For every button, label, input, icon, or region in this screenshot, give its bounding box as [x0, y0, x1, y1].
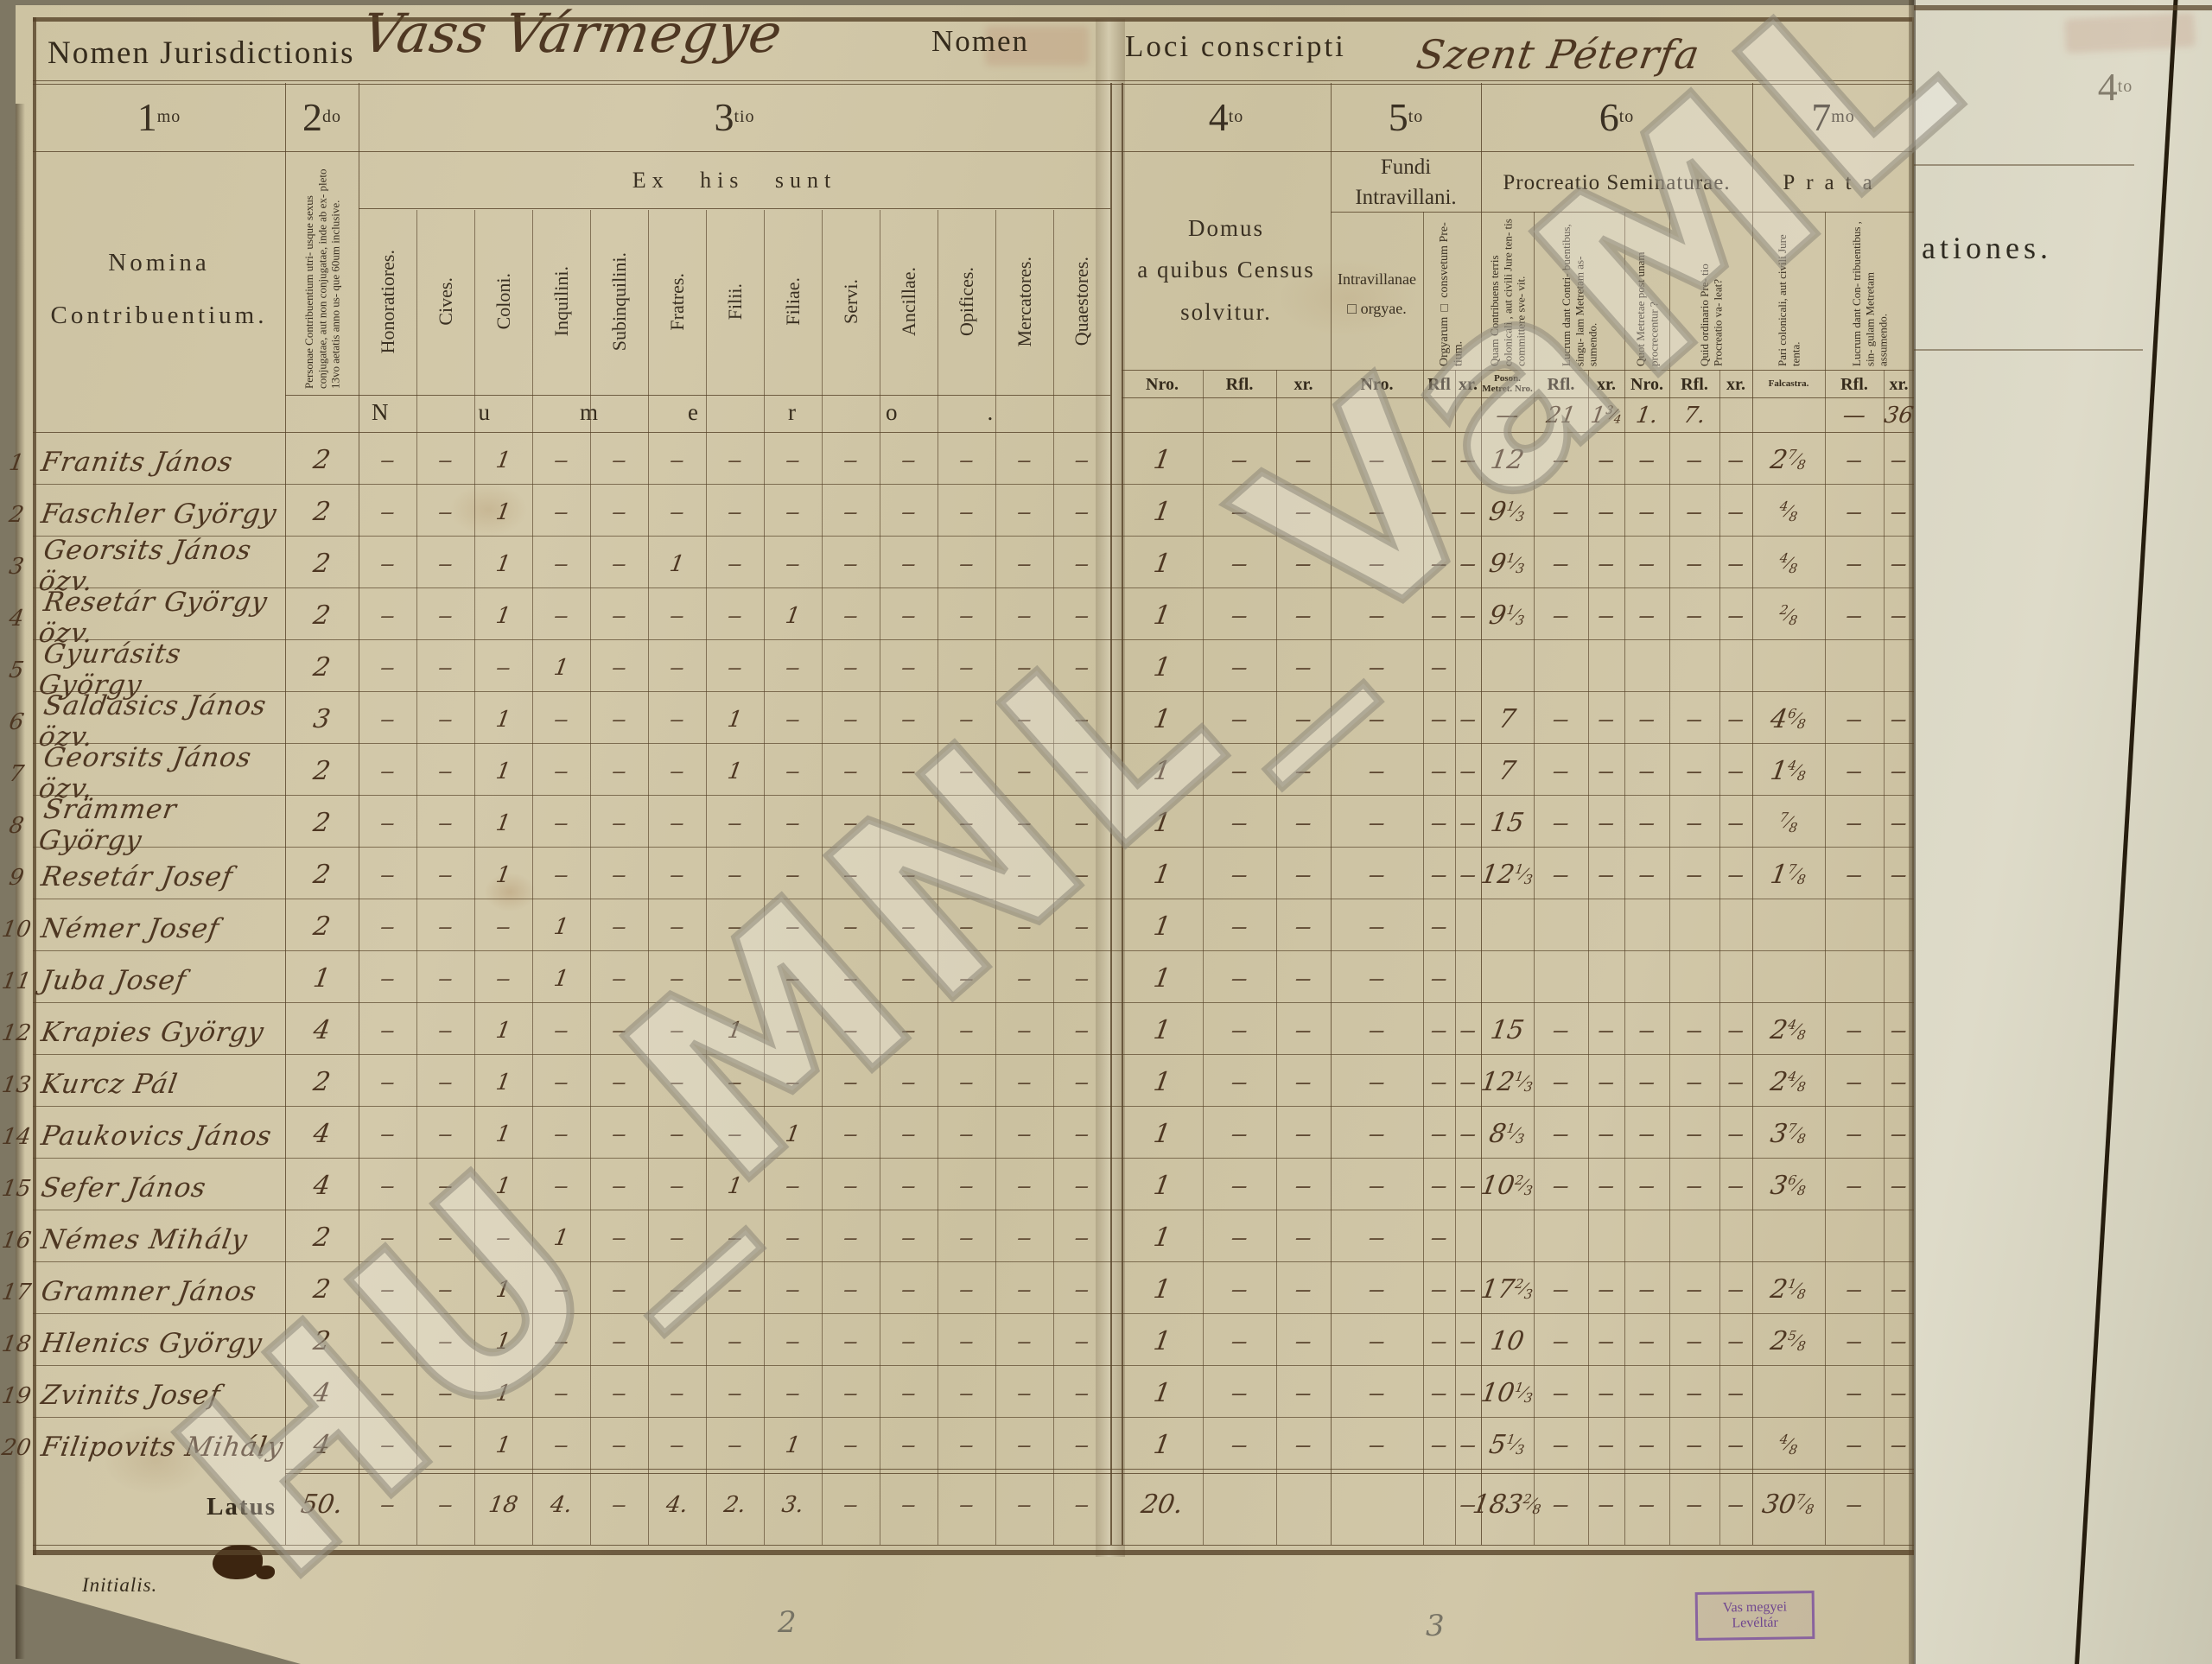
table-cell: ‒ [355, 1166, 419, 1206]
table-cell [1621, 1216, 1673, 1258]
table-cell: ‒ [1199, 1268, 1280, 1310]
table-cell: ‒ [529, 441, 593, 480]
table-cell: 1 [529, 648, 593, 688]
table-cell: ‒ [702, 855, 766, 895]
column-2-description: Personae Contribuentium utri- usque sexu… [286, 154, 358, 392]
table-cell: ‒ [355, 648, 419, 688]
table-cell: 1 [471, 700, 535, 740]
table-cell: ‒ [587, 1270, 651, 1310]
p2-cell: 4 [282, 1113, 362, 1154]
table-cell: ‒ [1530, 1372, 1592, 1413]
table-cell: ‒ [760, 700, 824, 740]
h-rule [33, 743, 1914, 744]
table-cell: ‒ [1666, 491, 1723, 532]
table-cell: ‒ [876, 752, 940, 791]
table-cell: ‒ [413, 544, 477, 584]
table-cell: ‒ [413, 1374, 477, 1413]
table-cell: ‒ [1821, 750, 1887, 791]
table-cell: ‒ [1666, 1113, 1723, 1154]
table-cell: ‒ [1050, 1270, 1113, 1310]
table-cell: ‒ [934, 1270, 998, 1310]
h-rule [33, 847, 1914, 848]
table-cell: 1 [702, 700, 766, 740]
table-cell: ‒ [1327, 646, 1427, 688]
row-number: 1 [0, 446, 34, 480]
subheader-label: xr. [1588, 372, 1624, 397]
table-cell: ‒ [1050, 803, 1113, 843]
p2-cell: 4 [282, 1372, 362, 1413]
p2-cell: 2 [282, 646, 362, 688]
latus-cell: ‒ [818, 1484, 883, 1526]
table-cell: ‒ [529, 544, 593, 584]
table-cell: ‒ [1327, 594, 1427, 636]
column-6-number: 6to [1481, 86, 1752, 147]
table-cell: ‒ [1666, 854, 1723, 895]
p2-cell: 2 [282, 543, 362, 584]
table-cell: 7⁄8 [1749, 802, 1828, 843]
table-cell: ‒ [818, 1374, 882, 1413]
table-cell: ‒ [1530, 698, 1592, 740]
numero-label: Numero. [372, 399, 1110, 426]
table-cell: ‒ [702, 1115, 766, 1154]
table-cell: 1 [1118, 854, 1206, 895]
table-cell: ‒ [702, 1218, 766, 1258]
h-rule [359, 208, 1110, 209]
subheader-label: Rfl [1423, 372, 1455, 397]
ink-blot [256, 1566, 275, 1579]
table-cell: ‒ [1050, 492, 1113, 532]
table-cell: 1 [471, 752, 535, 791]
subheader-label: xr. [1719, 372, 1752, 397]
table-cell: ‒ [1530, 1268, 1592, 1310]
table-cell: ‒ [645, 1115, 709, 1154]
table-cell: ‒ [1327, 1424, 1427, 1465]
table-cell: 1 [760, 1426, 824, 1465]
table-cell: ‒ [1666, 1424, 1723, 1465]
table-cell: ‒ [1530, 750, 1592, 791]
table-cell: ‒ [529, 1011, 593, 1051]
table-cell: ‒ [529, 1166, 593, 1206]
latus-cell: 4. [645, 1484, 709, 1526]
table-cell: ‒ [645, 1011, 709, 1051]
table-cell: ‒ [992, 1426, 1056, 1465]
latus-cell: ‒ [1530, 1483, 1592, 1526]
table-cell: ‒ [760, 1374, 824, 1413]
table-cell: ‒ [645, 752, 709, 791]
h-rule [33, 1054, 1914, 1055]
table-cell: 1 4⁄8 [1749, 750, 1828, 791]
table-cell: ‒ [587, 1426, 651, 1465]
table-cell: ‒ [934, 1218, 998, 1258]
table-cell: ‒ [413, 1218, 477, 1258]
table-cell: ‒ [645, 959, 709, 999]
table-cell: 4⁄8 [1749, 1424, 1828, 1465]
table-cell [1621, 646, 1673, 688]
table-cell: ‒ [1530, 854, 1592, 895]
table-cell [1666, 957, 1723, 999]
table-cell [1478, 905, 1537, 947]
nomen-label: Nomen [931, 24, 1029, 59]
price-row-cell: 21 [1531, 399, 1591, 432]
table-cell: ‒ [1821, 1372, 1887, 1413]
row-number: 8 [0, 809, 34, 843]
table-cell: 1 [471, 1063, 535, 1102]
table-cell: 1 [529, 907, 593, 947]
col3-sublabel: Ancillae. [880, 210, 938, 393]
table-cell [1821, 1216, 1887, 1258]
col3-sublabel: Filiae. [764, 210, 822, 393]
orgyarum-pretium-label: Orgyarum □ consvetum Pre- tium. [1423, 216, 1481, 370]
table-cell: ‒ [1621, 1320, 1673, 1362]
table-cell: 1 [529, 959, 593, 999]
table-cell: ‒ [1199, 594, 1280, 636]
table-cell: 1 [1118, 905, 1206, 947]
table-cell: ‒ [1821, 1320, 1887, 1362]
table-cell: ‒ [760, 648, 824, 688]
table-cell: ‒ [1821, 698, 1887, 740]
table-cell: ‒ [1666, 1009, 1723, 1051]
latus-cell: ‒ [934, 1484, 999, 1526]
table-cell: ‒ [876, 700, 940, 740]
subheader-label: xr. [1455, 372, 1481, 397]
table-cell: 10 [1478, 1320, 1537, 1362]
table-cell: 1 [1118, 1113, 1206, 1154]
table-cell: ‒ [1327, 1320, 1427, 1362]
column-1-title: Nomina Contribuentium. [33, 216, 285, 363]
table-cell: ‒ [818, 907, 882, 947]
table-cell: ‒ [1327, 957, 1427, 999]
table-cell: 1 [471, 1270, 535, 1310]
table-cell: ‒ [1821, 543, 1887, 584]
table-cell: 1 7⁄8 [1749, 854, 1828, 895]
table-cell: ‒ [645, 803, 709, 843]
table-cell: ‒ [818, 544, 882, 584]
table-cell: ‒ [818, 1218, 882, 1258]
table-cell: ‒ [1530, 1061, 1592, 1102]
table-cell: ‒ [413, 1270, 477, 1310]
table-cell: ‒ [1327, 1009, 1427, 1051]
h-rule [33, 17, 1912, 22]
row-number: 6 [0, 705, 34, 740]
table-cell: 9 1⁄3 [1478, 491, 1537, 532]
table-cell: ‒ [934, 700, 998, 740]
p2-cell: 2 [282, 1061, 362, 1102]
latus-cell: ‒ [1621, 1483, 1673, 1526]
table-cell: ‒ [818, 1270, 882, 1310]
p2-cell: 2 [282, 905, 362, 947]
fundi-orgyae-label: Intravillanae □ orgyae. [1331, 218, 1423, 370]
table-cell: ‒ [702, 648, 766, 688]
table-cell: ‒ [876, 441, 940, 480]
row-number: 4 [0, 601, 34, 636]
table-cell: ‒ [529, 596, 593, 636]
table-cell: ‒ [934, 907, 998, 947]
table-cell: ‒ [1327, 905, 1427, 947]
table-cell: ‒ [1327, 1165, 1427, 1206]
table-cell: ‒ [413, 1426, 477, 1465]
table-cell: ‒ [1530, 594, 1592, 636]
table-cell: ‒ [1273, 802, 1334, 843]
table-cell: ‒ [1050, 907, 1113, 947]
table-cell: ‒ [934, 648, 998, 688]
table-cell: ‒ [413, 959, 477, 999]
table-cell: ‒ [1530, 1165, 1592, 1206]
table-cell: ‒ [587, 441, 651, 480]
subheader-label: Poson. Metret. Nro. [1481, 372, 1534, 397]
table-cell: ‒ [934, 1374, 998, 1413]
table-cell: 1 [471, 1115, 535, 1154]
table-cell [1749, 1216, 1828, 1258]
table-cell: ‒ [1621, 1061, 1673, 1102]
table-cell: ‒ [355, 959, 419, 999]
table-cell: ‒ [645, 1374, 709, 1413]
table-cell: ‒ [992, 1063, 1056, 1102]
table-cell: ‒ [934, 1166, 998, 1206]
latus-cell: 18 [471, 1484, 536, 1526]
table-cell: ‒ [645, 441, 709, 480]
table-cell: ‒ [876, 1063, 940, 1102]
table-cell: ‒ [934, 959, 998, 999]
table-cell: ‒ [413, 596, 477, 636]
table-cell: ‒ [1666, 802, 1723, 843]
table-cell: ‒ [992, 959, 1056, 999]
table-cell: ‒ [1199, 1113, 1280, 1154]
table-cell: 1 [1118, 957, 1206, 999]
table-cell: ‒ [1327, 750, 1427, 791]
name-cell: Georsits János özv. [38, 546, 286, 586]
latus-p2: 50. [282, 1483, 362, 1526]
table-cell: ‒ [1621, 1424, 1673, 1465]
table-cell: ‒ [471, 648, 535, 688]
row-number: 3 [0, 549, 34, 584]
latus-cell [1273, 1483, 1334, 1526]
table-cell: ‒ [1050, 648, 1113, 688]
column-6-title: Procreatio Seminaturae. [1481, 162, 1752, 204]
name-cell: Gyurásits György [38, 650, 286, 689]
table-cell: ‒ [587, 959, 651, 999]
table-cell: ‒ [876, 1426, 940, 1465]
latus-cell [1327, 1483, 1427, 1526]
table-cell: ‒ [760, 492, 824, 532]
table-cell: ‒ [355, 752, 419, 791]
table-cell: ‒ [1199, 1320, 1280, 1362]
table-cell: 1 [760, 596, 824, 636]
table-cell [1530, 905, 1592, 947]
latus-cell: ‒ [587, 1484, 652, 1526]
table-cell: ‒ [645, 648, 709, 688]
table-cell: ‒ [760, 441, 824, 480]
table-cell: 1 [471, 1011, 535, 1051]
table-cell: 1 [471, 855, 535, 895]
table-cell: ‒ [413, 1063, 477, 1102]
table-cell: ‒ [1327, 1216, 1427, 1258]
table-cell: ‒ [760, 1270, 824, 1310]
row-number: 2 [0, 498, 34, 532]
table-cell: ‒ [413, 1166, 477, 1206]
table-cell: ‒ [1199, 1216, 1280, 1258]
table-cell: ‒ [702, 1063, 766, 1102]
table-cell: ‒ [413, 648, 477, 688]
table-cell: ‒ [992, 1322, 1056, 1362]
h-rule [33, 1545, 1914, 1546]
subheader-label: Rfl. [1203, 372, 1276, 397]
table-cell: ‒ [1621, 1165, 1673, 1206]
table-cell: ‒ [1327, 439, 1427, 480]
col3-sublabel: Opifices. [938, 210, 995, 393]
table-cell: 9 1⁄3 [1478, 594, 1537, 636]
table-cell [1666, 905, 1723, 947]
table-cell: ‒ [702, 907, 766, 947]
table-cell: ‒ [760, 1063, 824, 1102]
table-cell: 1 [471, 1166, 535, 1206]
table-cell: 3 6⁄8 [1749, 1165, 1828, 1206]
column-4-title: Domus a quibus Census solvitur. [1122, 194, 1331, 346]
latus-cell: 30 7⁄8 [1749, 1483, 1828, 1526]
table-cell [1821, 957, 1887, 999]
pencil-mark-2: 2 [778, 1605, 797, 1640]
table-cell: ‒ [471, 1218, 535, 1258]
table-cell: ‒ [1050, 1166, 1113, 1206]
table-cell: 1 [471, 441, 535, 480]
latus-cell: ‒ [1666, 1483, 1723, 1526]
table-cell: ‒ [1273, 439, 1334, 480]
table-cell [1530, 1216, 1592, 1258]
table-cell: ‒ [587, 1115, 651, 1154]
column-3-title: Ex his sunt [359, 158, 1110, 203]
row-number: 16 [0, 1223, 34, 1258]
table-cell: ‒ [760, 752, 824, 791]
table-cell: ‒ [587, 1166, 651, 1206]
table-cell: ‒ [760, 855, 824, 895]
table-cell [1621, 905, 1673, 947]
table-cell: ‒ [1621, 1009, 1673, 1051]
price-row-cell: 1 3⁄4 [1586, 399, 1627, 432]
latus-label: Latus [130, 1489, 276, 1524]
table-cell: ‒ [1273, 905, 1334, 947]
table-cell: 1 [471, 1322, 535, 1362]
table-cell: 1 [471, 544, 535, 584]
table-cell: 1 [702, 752, 766, 791]
h-rule [33, 484, 1914, 485]
table-cell: ‒ [355, 855, 419, 895]
table-cell: ‒ [1199, 750, 1280, 791]
latus-cell: ‒ [1050, 1484, 1114, 1526]
table-cell: 12 1⁄3 [1478, 854, 1537, 895]
table-cell: ‒ [1530, 491, 1592, 532]
name-cell: Georsits János özv. [38, 753, 286, 793]
table-cell: ‒ [1273, 1372, 1334, 1413]
row-number: 20 [0, 1431, 34, 1465]
table-cell: ‒ [934, 544, 998, 584]
table-cell: ‒ [1666, 439, 1723, 480]
table-cell: ‒ [992, 544, 1056, 584]
table-cell: 1 [1118, 802, 1206, 843]
table-cell: ‒ [992, 1115, 1056, 1154]
table-cell: 1 [1118, 1165, 1206, 1206]
column-7-number: 7mo [1752, 86, 1914, 147]
row-number: 7 [0, 757, 34, 791]
table-cell: ‒ [471, 959, 535, 999]
col3-sublabel: Servi. [822, 210, 880, 393]
table-cell: ‒ [876, 544, 940, 584]
table-cell: ‒ [818, 855, 882, 895]
table-cell: ‒ [1199, 543, 1280, 584]
table-cell: ‒ [529, 803, 593, 843]
table-cell [1478, 957, 1537, 999]
table-cell: ‒ [992, 1166, 1056, 1206]
table-cell: ‒ [1273, 543, 1334, 584]
table-cell: ‒ [1199, 1372, 1280, 1413]
table-cell: ‒ [645, 1218, 709, 1258]
table-cell: ‒ [1199, 957, 1280, 999]
table-cell: ‒ [355, 1115, 419, 1154]
table-cell: ‒ [1273, 1320, 1334, 1362]
table-cell: ‒ [760, 1218, 824, 1258]
table-cell: ‒ [1666, 1061, 1723, 1102]
h-rule [1122, 370, 1914, 371]
table-cell: ‒ [992, 855, 1056, 895]
p2-cell: 2 [282, 854, 362, 895]
proc-metretae-label: Quot Metretae post unam procrecentur ? [1624, 214, 1669, 370]
p2-cell: 2 [282, 802, 362, 843]
table-cell: ‒ [1821, 1424, 1887, 1465]
name-cell: Hlenics György [38, 1324, 286, 1363]
table-cell: ‒ [876, 1166, 940, 1206]
p2-cell: 1 [282, 957, 362, 999]
table-cell: ‒ [1621, 543, 1673, 584]
table-cell: ‒ [471, 907, 535, 947]
row-number: 13 [0, 1068, 34, 1102]
table-cell: ‒ [876, 1115, 940, 1154]
table-cell: 1 [1118, 1061, 1206, 1102]
h-rule [1122, 397, 1914, 398]
table-cell: ‒ [818, 700, 882, 740]
table-cell: ‒ [1530, 1424, 1592, 1465]
h-rule [33, 1365, 1914, 1366]
column-2-number: 2do [285, 86, 359, 147]
table-cell: 3 7⁄8 [1749, 1113, 1828, 1154]
proc-lucrum-label: Lucrum dant Contri- buentibus, singu- la… [1534, 214, 1624, 370]
table-cell: ‒ [702, 803, 766, 843]
name-cell: Franits János [38, 442, 286, 482]
name-cell: Paukovics János [38, 1116, 286, 1156]
h-rule [33, 639, 1914, 640]
row-number: 11 [0, 964, 34, 999]
table-cell: 1 [529, 1218, 593, 1258]
h-rule [33, 536, 1914, 537]
table-cell: ‒ [1621, 698, 1673, 740]
subheader-label: xr. [1884, 372, 1914, 397]
table-cell: ‒ [1273, 1009, 1334, 1051]
table-cell: ‒ [1050, 959, 1113, 999]
name-cell: Gramner János [38, 1272, 286, 1312]
table-cell: 10 1⁄3 [1478, 1372, 1537, 1413]
table-cell: ‒ [1530, 1113, 1592, 1154]
table-cell: ‒ [355, 1374, 419, 1413]
name-cell: Srämmer György [38, 805, 286, 845]
table-cell: 1 [1118, 1424, 1206, 1465]
table-cell: ‒ [1621, 802, 1673, 843]
table-cell: ‒ [818, 1166, 882, 1206]
h-rule [33, 1550, 1914, 1555]
table-cell: ‒ [1821, 1165, 1887, 1206]
table-cell: 1 [1118, 750, 1206, 791]
table-cell [1530, 646, 1592, 688]
p2-cell: 4 [282, 1424, 362, 1465]
table-cell: 2 5⁄8 [1749, 1320, 1828, 1362]
table-cell: ‒ [1621, 594, 1673, 636]
table-cell: 7 [1478, 698, 1537, 740]
